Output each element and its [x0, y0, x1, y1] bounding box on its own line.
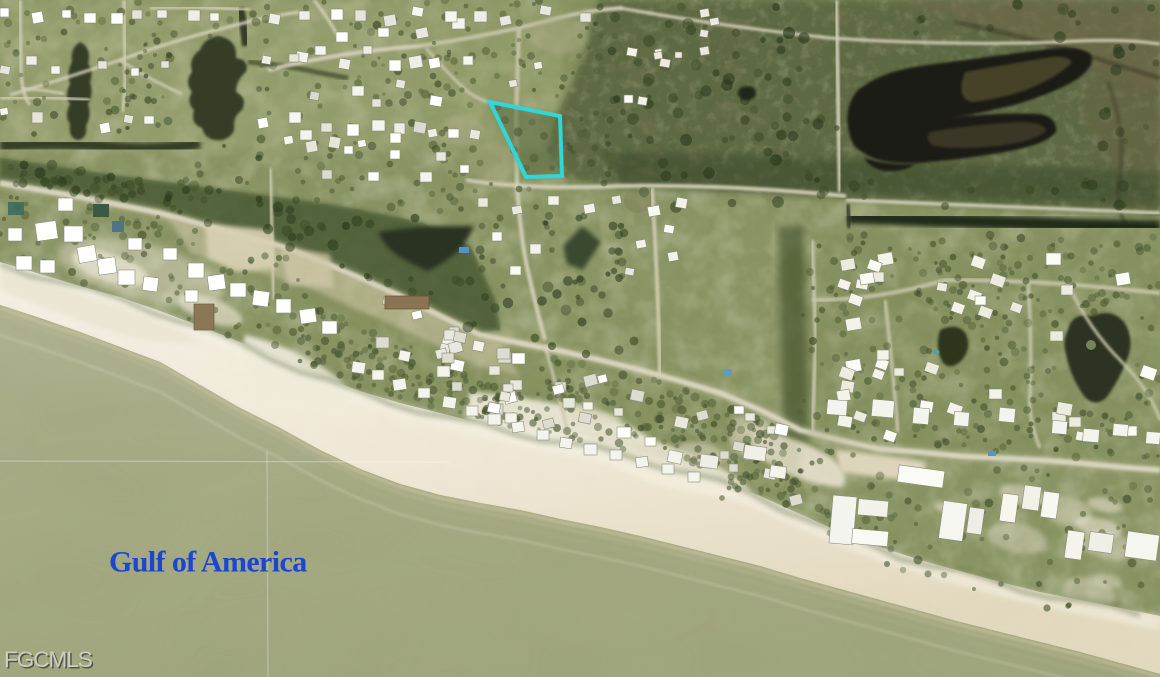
- svg-text:Gulf of America: Gulf of America: [109, 546, 307, 579]
- svg-text:FGCMLS: FGCMLS: [4, 647, 92, 672]
